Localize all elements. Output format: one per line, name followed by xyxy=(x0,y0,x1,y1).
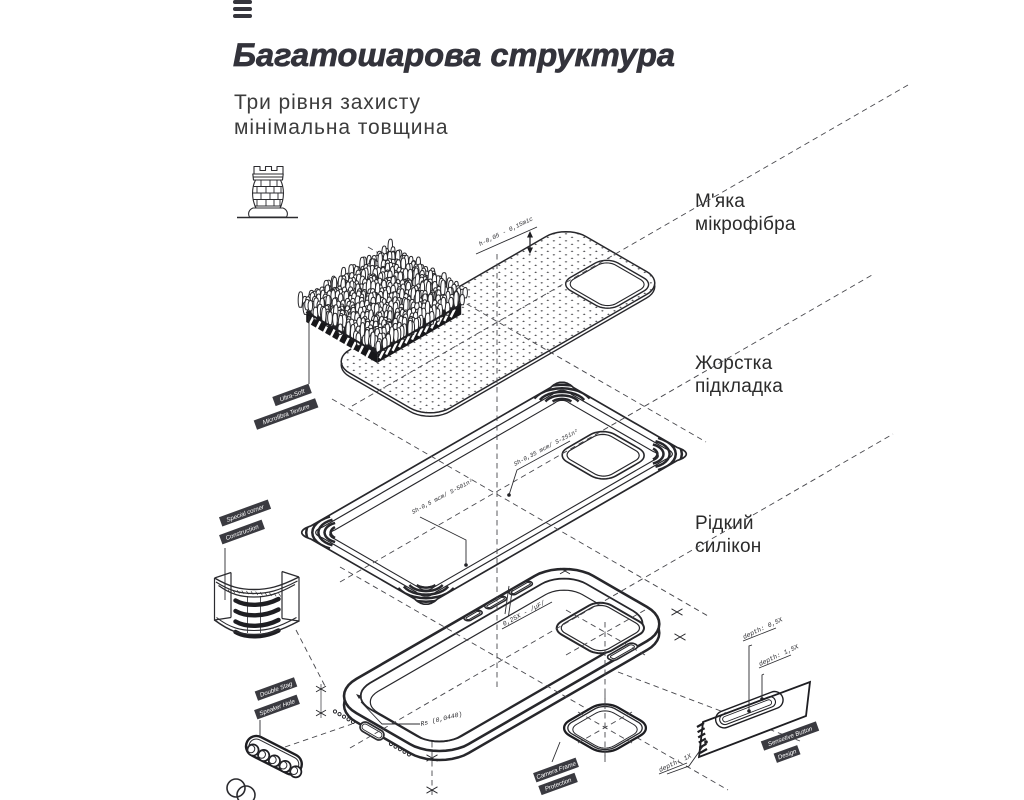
svg-text:depth: 0,5X: depth: 0,5X xyxy=(742,616,785,641)
svg-text:Microfibra Texture: Microfibra Texture xyxy=(262,403,311,427)
svg-text:Double Stag: Double Stag xyxy=(259,680,294,698)
svg-text:Design: Design xyxy=(777,748,798,761)
svg-text:Construction: Construction xyxy=(225,523,261,542)
svg-text:depth: 1,5X: depth: 1,5X xyxy=(758,643,801,668)
